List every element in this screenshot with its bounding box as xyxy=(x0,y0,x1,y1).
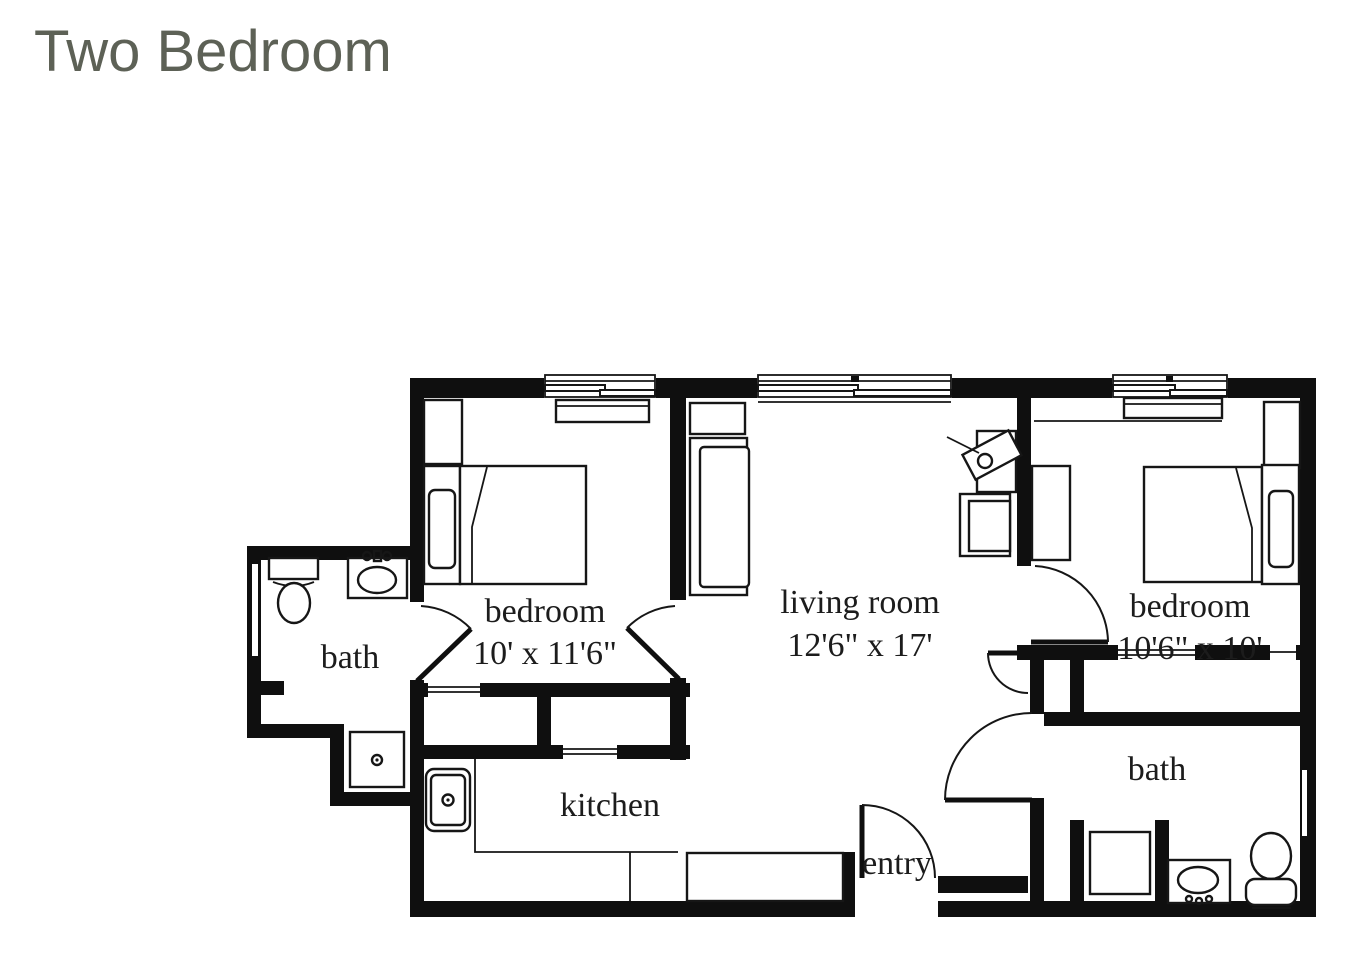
dresser-icon xyxy=(1264,402,1300,468)
shower-icon xyxy=(350,732,404,787)
closet1-slider xyxy=(428,683,480,697)
wall-shower1-bottom xyxy=(330,792,424,806)
entry-label: entry xyxy=(862,845,932,882)
bath2-door xyxy=(945,713,1032,800)
shower-icon xyxy=(1090,832,1150,894)
toilet-icon xyxy=(269,558,318,623)
end-table-icon xyxy=(690,403,745,434)
wall-hall-closet-right xyxy=(1070,645,1084,712)
wall-bedroom1-left-upper xyxy=(410,378,424,602)
toilet-icon xyxy=(1246,833,1296,908)
wall-bath2-left-lower xyxy=(1030,798,1044,901)
living-room-furniture xyxy=(690,403,1022,595)
bath2-wall-recess xyxy=(1302,770,1307,836)
bed-pillow xyxy=(1269,491,1293,567)
wall-bath2-top xyxy=(1044,712,1316,726)
bedroom2-furniture xyxy=(1032,398,1300,584)
living-room-label: living room xyxy=(780,584,940,621)
bath2-fixtures xyxy=(1090,832,1296,908)
wall-hall-closet-left xyxy=(1030,645,1044,714)
tv-stand-icon xyxy=(947,430,1022,492)
floor-plan-drawing: bedroom 10' x 11'6" living room 12'6" x … xyxy=(0,0,1368,974)
floor-plan-page: Two Bedroom xyxy=(0,0,1368,974)
closet2-slider xyxy=(563,745,617,759)
wall-closet-divider xyxy=(537,697,551,745)
dresser-icon xyxy=(1032,466,1070,560)
living-room-window xyxy=(757,374,952,402)
window-shelf-icon xyxy=(1034,398,1222,421)
bedroom2-dimensions: 10'6" x 10' xyxy=(1117,630,1262,667)
window-latch xyxy=(1166,376,1173,382)
kitchen-fixtures xyxy=(426,759,843,901)
sink-icon xyxy=(1168,860,1230,904)
bedroom1-window xyxy=(544,374,656,398)
bath1-door xyxy=(417,606,471,681)
double-bed-icon xyxy=(424,466,586,584)
sink-icon xyxy=(348,551,407,598)
window-latch xyxy=(851,376,859,382)
counter-peninsula xyxy=(687,853,843,901)
bath1-label: bath xyxy=(321,639,380,676)
bedroom2-door xyxy=(1031,566,1108,642)
sofa-icon xyxy=(690,438,749,595)
window-shelf-icon xyxy=(556,400,649,422)
wall-shower2-left xyxy=(1070,820,1084,901)
room-labels: bedroom 10' x 11'6" living room 12'6" x … xyxy=(321,584,1263,882)
bedroom2-window xyxy=(1112,374,1228,398)
bedroom1-dimensions: 10' x 11'6" xyxy=(473,635,617,672)
wall-closet-row-bottom xyxy=(410,745,690,759)
wall-living-bedroom2-divider xyxy=(1017,378,1031,566)
bed-mattress xyxy=(1144,467,1262,582)
bed-pillow xyxy=(429,490,455,568)
bedroom1-furniture xyxy=(424,400,649,584)
bedroom2-label: bedroom xyxy=(1130,588,1251,625)
kitchen-sink-icon xyxy=(426,769,470,831)
bedroom2-closet-slider-small xyxy=(1270,645,1296,660)
dresser-icon xyxy=(424,400,462,464)
bedroom1-door xyxy=(627,606,679,679)
bath2-label: bath xyxy=(1128,751,1187,788)
bedroom1-label: bedroom xyxy=(485,593,606,630)
wall-bottom-left xyxy=(410,901,855,917)
double-bed-icon xyxy=(1144,465,1299,584)
bath1-wall-recess xyxy=(252,564,258,656)
wall-entry-step xyxy=(938,876,1028,893)
armchair-icon xyxy=(960,494,1010,556)
wall-bath1-nub xyxy=(258,681,284,695)
wall-bath1-bottom xyxy=(247,724,344,738)
wall-bedroom2-bottom-c xyxy=(1296,645,1316,660)
wall-bedroom1-living-divider xyxy=(670,378,686,600)
living-room-dimensions: 12'6" x 17' xyxy=(787,627,932,664)
bed-mattress xyxy=(460,466,586,584)
kitchen-label: kitchen xyxy=(560,787,660,824)
